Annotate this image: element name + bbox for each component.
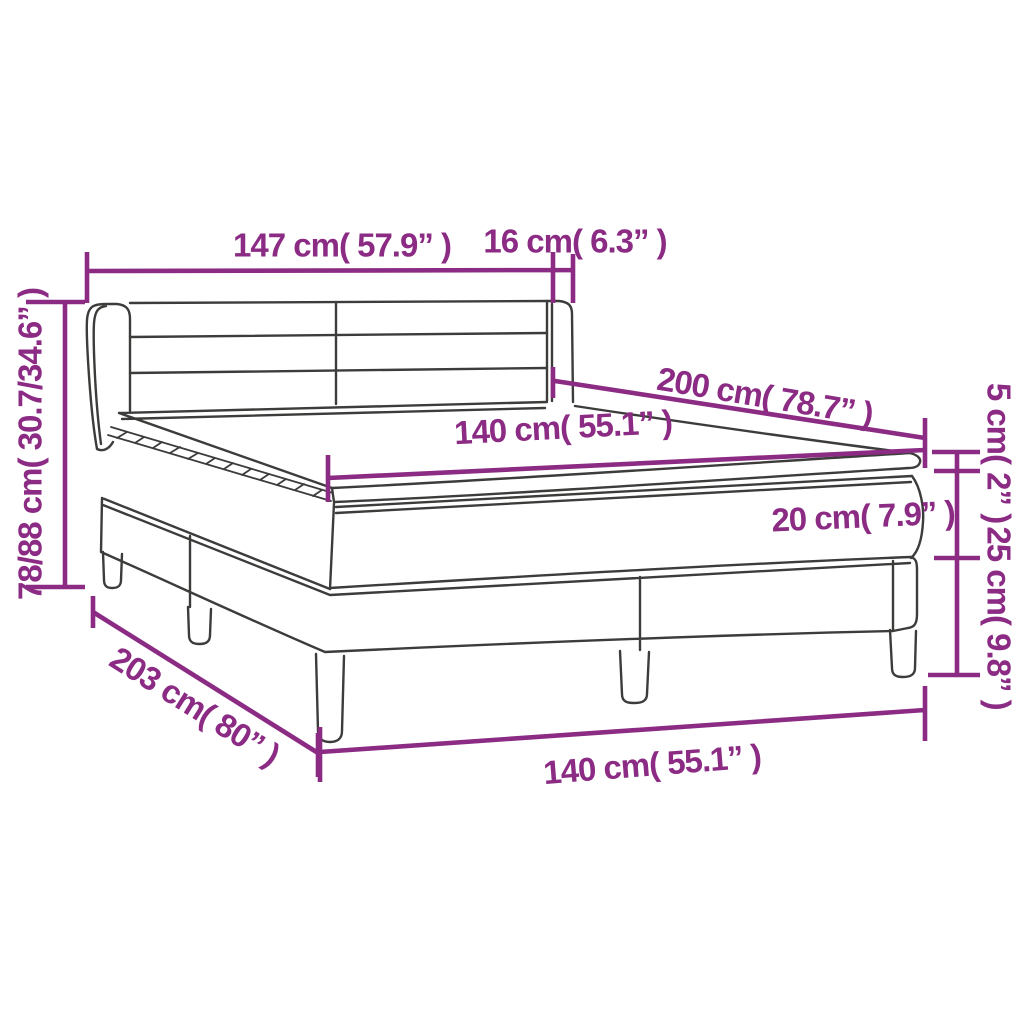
frame-width-label: 140 cm( 55.1” ) [542, 737, 762, 791]
bed-dimension-diagram: 147 cm( 57.9” ) 16 cm( 6.3” ) 78/88 cm( … [0, 0, 1024, 1024]
mattress-thickness-label: 20 cm( 7.9” ) [771, 494, 956, 539]
right-height-dimension-line [928, 452, 980, 675]
dimension-labels: 147 cm( 57.9” ) 16 cm( 6.3” ) 78/88 cm( … [12, 223, 1018, 791]
overall-height-label: 78/88 cm( 30.7/34.6” ) [12, 288, 49, 600]
headboard-panel [130, 301, 547, 404]
topper-stitch-marks [108, 427, 333, 501]
side-panel-depth-label: 16 cm( 6.3” ) [483, 223, 666, 260]
mattress-topper-edge [332, 453, 920, 502]
base-length-dimension-line [93, 596, 318, 777]
base-height-label: 25 cm( 9.8” ) [980, 526, 1017, 709]
topper-thickness-label: 5 cm( 2” ) [980, 383, 1017, 523]
headboard-left-wing [87, 304, 130, 450]
frame-length-label: 203 cm( 80” ) [104, 639, 287, 773]
diagram-canvas: 147 cm( 57.9” ) 16 cm( 6.3” ) 78/88 cm( … [0, 0, 1024, 1024]
headboard-width-label: 147 cm( 57.9” ) [233, 227, 451, 264]
